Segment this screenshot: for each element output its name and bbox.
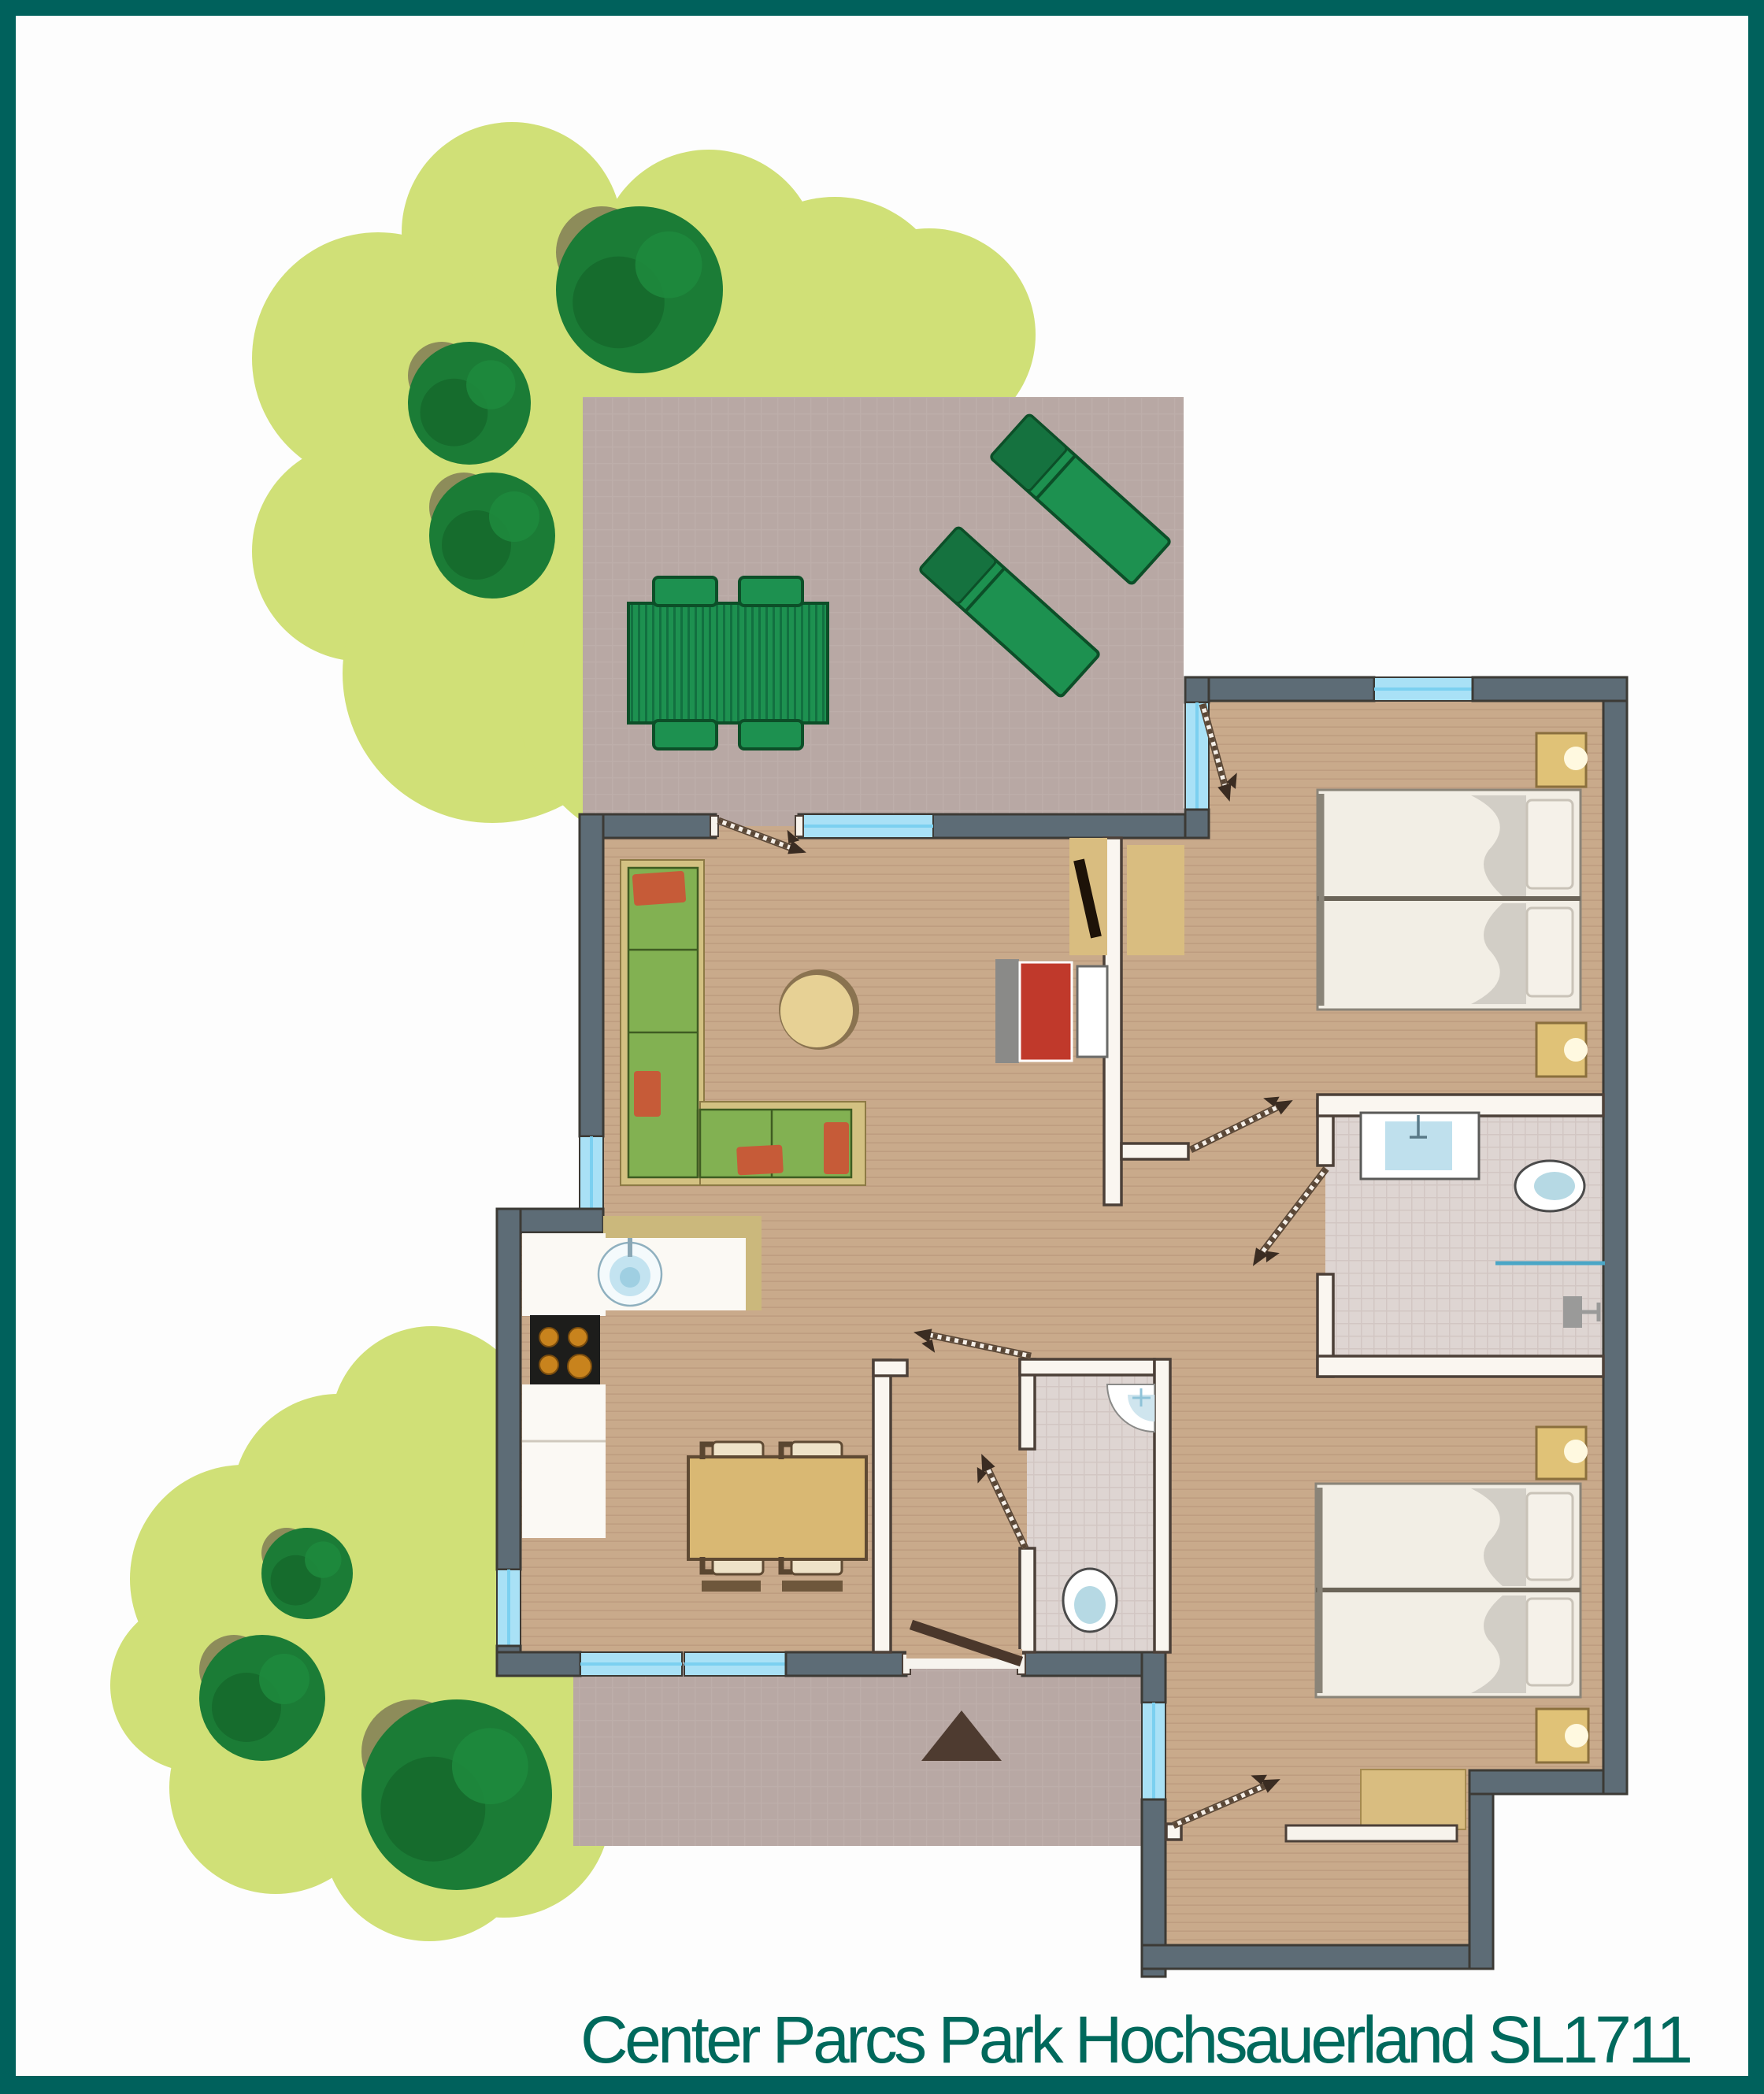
svg-text:Center Parcs Park Hochsauerlan: Center Parcs Park Hochsauerland SL1711 (580, 2003, 1693, 2077)
